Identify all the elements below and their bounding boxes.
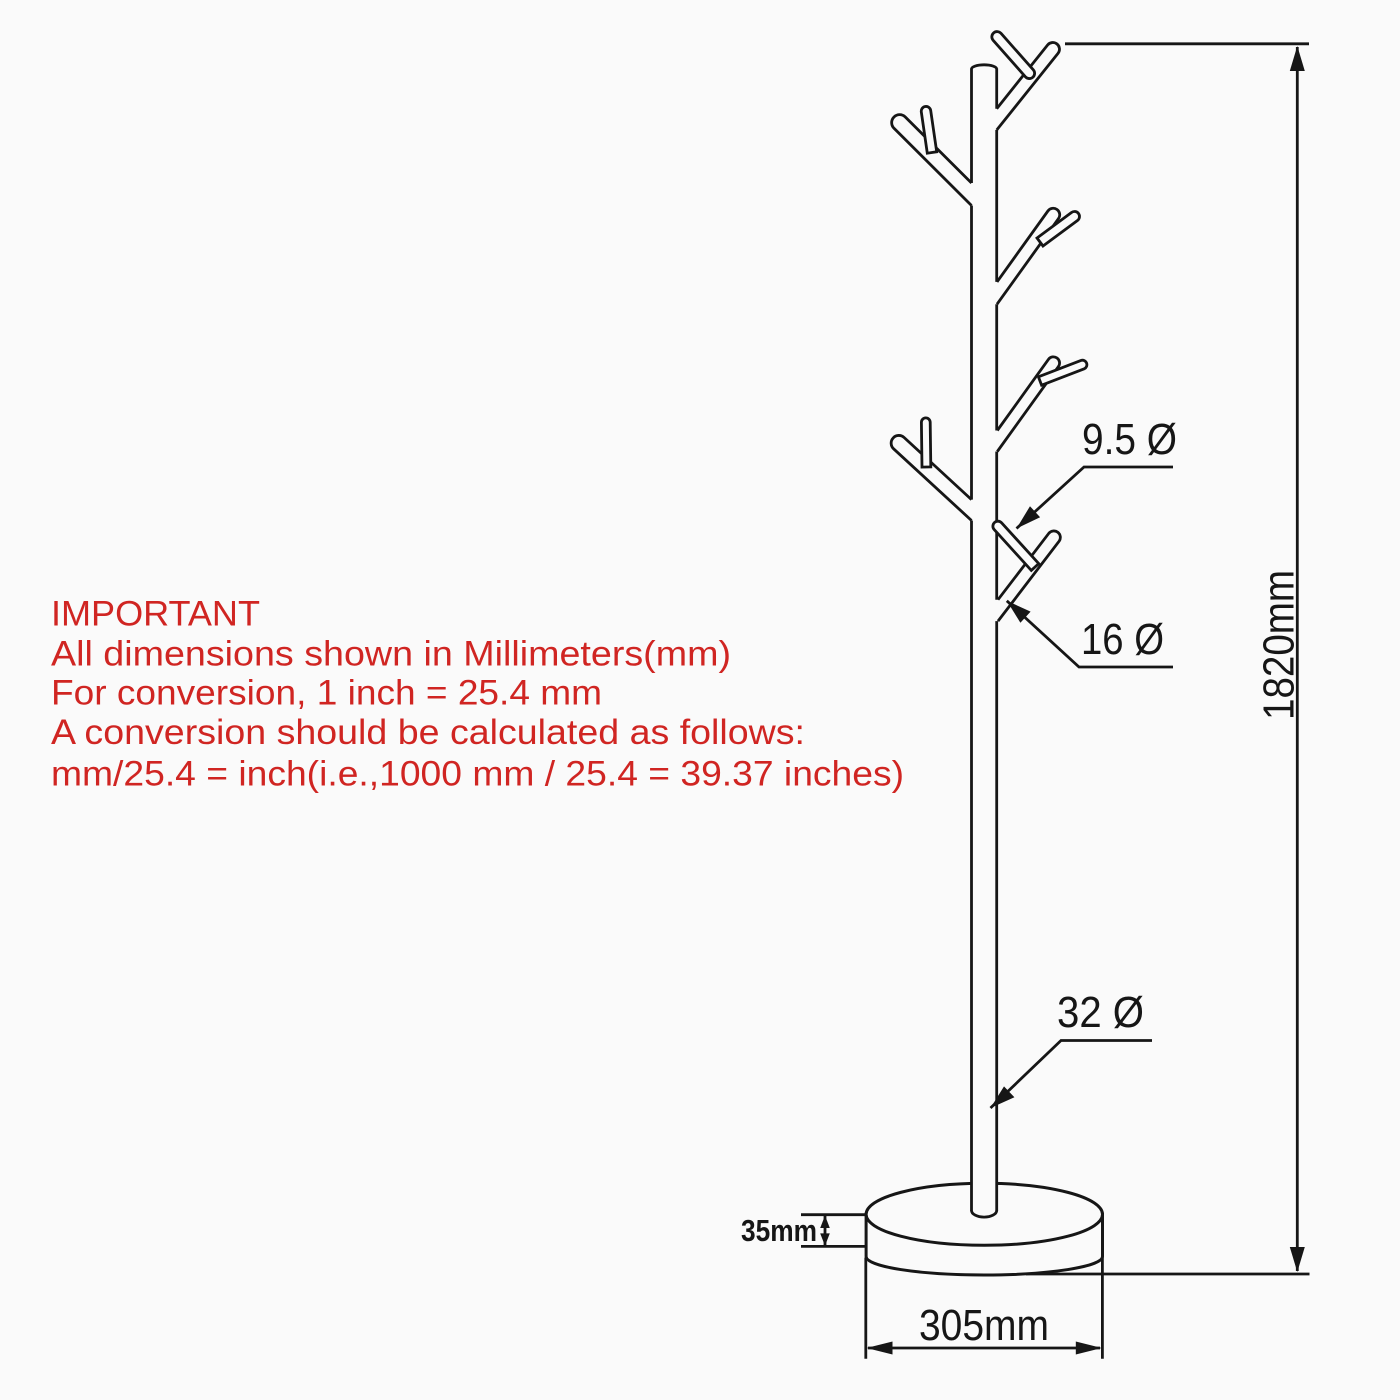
svg-text:32 Ø: 32 Ø [1057,988,1144,1037]
svg-text:IMPORTANT: IMPORTANT [51,595,260,634]
svg-text:35mm: 35mm [741,1213,817,1248]
svg-text:16 Ø: 16 Ø [1081,615,1164,664]
svg-text:305mm: 305mm [919,1301,1049,1350]
svg-text:9.5 Ø: 9.5 Ø [1082,415,1177,464]
svg-text:mm/25.4 = inch(i.e.,1000 mm /: mm/25.4 = inch(i.e.,1000 mm / 25.4 = 39.… [51,755,904,794]
svg-text:1820mm: 1820mm [1255,570,1304,720]
svg-text:A conversion should be calcula: A conversion should be calculated as fol… [51,713,805,752]
svg-text:For conversion, 1 inch = 25.4: For conversion, 1 inch = 25.4 mm [51,673,602,712]
svg-text:All dimensions shown in Millim: All dimensions shown in Millimeters(mm) [51,635,731,674]
